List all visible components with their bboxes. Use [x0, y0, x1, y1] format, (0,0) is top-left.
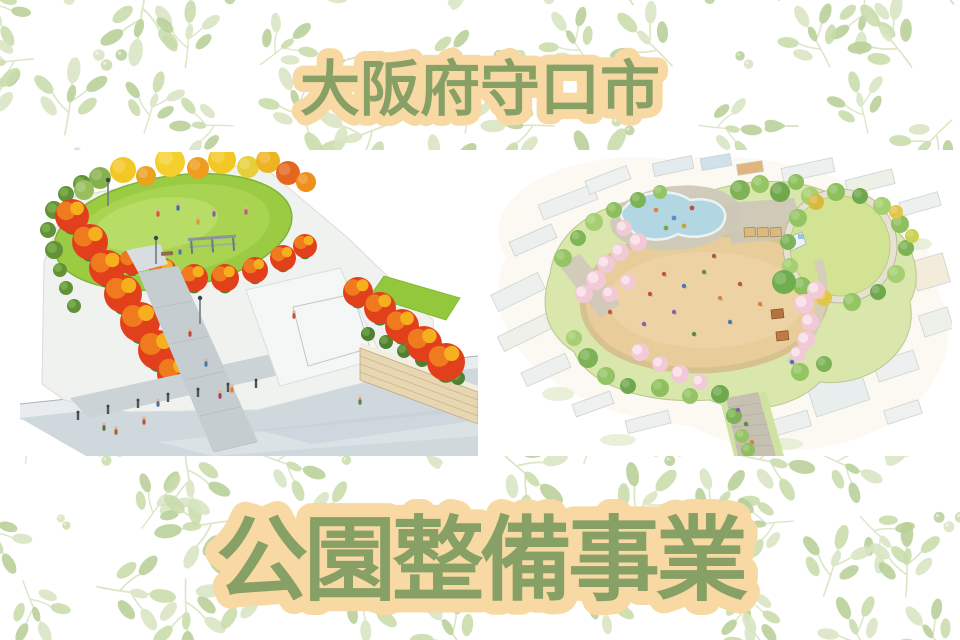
banner-page: 大阪府守口市 公園整備事業	[0, 0, 960, 640]
spring-park-plan-illustration	[488, 152, 952, 456]
autumn-park-illustration	[8, 152, 478, 456]
title-location: 大阪府守口市	[0, 0, 960, 150]
title-project-text: 公園整備事業	[216, 510, 748, 612]
title-location-text: 大阪府守口市	[300, 56, 660, 123]
title-project: 公園整備事業	[0, 460, 960, 640]
